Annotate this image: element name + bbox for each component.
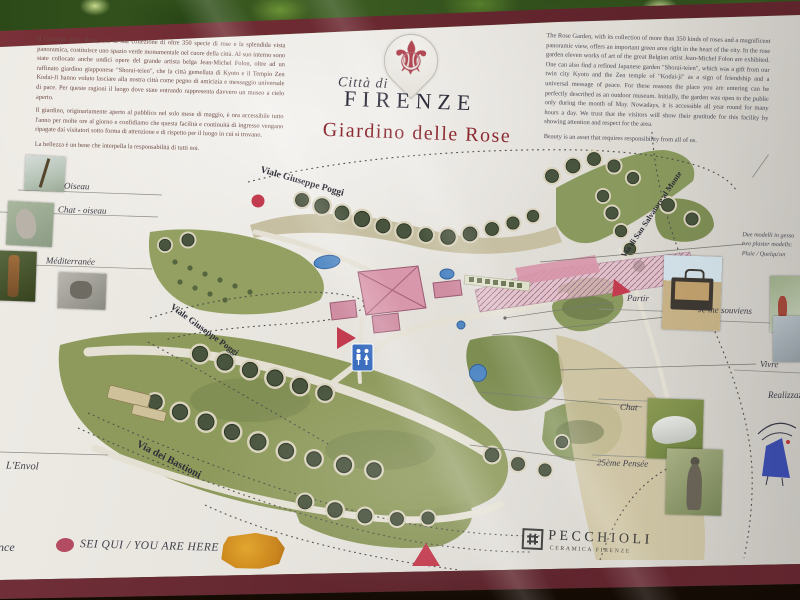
intro-en-p1: The Rose Garden, with its collection of … [544, 31, 770, 133]
label-oiseau: Oiseau [64, 181, 90, 192]
cat-sculpture-shape [650, 413, 698, 446]
label-chat-oiseau: Chat - oiseau [58, 204, 107, 216]
orange-paint-blob [220, 532, 285, 570]
photo-oiseau [24, 155, 66, 192]
photo-of-park-sign: Viale Giuseppe Poggi Viale Giuseppe Pogg… [0, 0, 800, 600]
label-fragment-realizzaz: Realizzaz [768, 390, 800, 400]
folon-figure-sketch [752, 412, 800, 487]
envol-sculpture-shape [70, 281, 93, 300]
photo-partir [662, 255, 723, 331]
label-je-me-souviens: Je me souviens [698, 304, 752, 316]
label-mediterranee: Méditerranée [46, 255, 95, 267]
plaster-note-line3: Pluie / Quelqu'un [742, 249, 800, 260]
city-name-label: FIRENZE [344, 86, 477, 117]
intro-it-p1: Il Giardino delle Rose, con la sua colle… [36, 35, 286, 109]
pecchioli-mark-icon [522, 528, 544, 550]
label-fragment-bottom-left: nce [0, 540, 15, 555]
you-are-here-dot-on-map [252, 195, 265, 208]
intro-it-closing: La bellezza è un bene che interpella la … [35, 140, 283, 156]
intro-paragraph-english: The Rose Garden, with its collection of … [544, 31, 771, 152]
label-envol: L'Envol [6, 460, 39, 472]
wc-icon [352, 344, 373, 371]
photo-vivre [773, 316, 800, 362]
photo-mediterranee [0, 250, 37, 302]
label-partir: Partir [627, 293, 649, 304]
column-sculpture-shape [7, 255, 19, 297]
photo-25eme-pensee [665, 448, 723, 515]
suitcase-interior-shape [675, 281, 710, 300]
cat-bird-sculpture-shape [15, 208, 38, 240]
statue-body-shape [686, 464, 702, 510]
label-vivre: Vivre [760, 359, 779, 370]
label-chat: Chat [620, 402, 638, 413]
label-25eme-pensee: 25ème Pensée [597, 457, 649, 469]
intro-it-p2: Il giardino, originariamente aperto al p… [35, 106, 284, 141]
photo-envol [57, 272, 106, 310]
photo-chat-oiseau [6, 201, 54, 247]
bird-sculpture-shape [39, 158, 51, 188]
plaster-models-note: Due modelli in gesso two plaster modells… [742, 230, 800, 260]
intro-paragraph-italian: Il Giardino delle Rose, con la sua colle… [34, 35, 285, 160]
intro-en-closing: Beauty is an asset that requires respons… [544, 132, 768, 147]
fleur-de-lis-icon: ⚜ [382, 29, 440, 87]
